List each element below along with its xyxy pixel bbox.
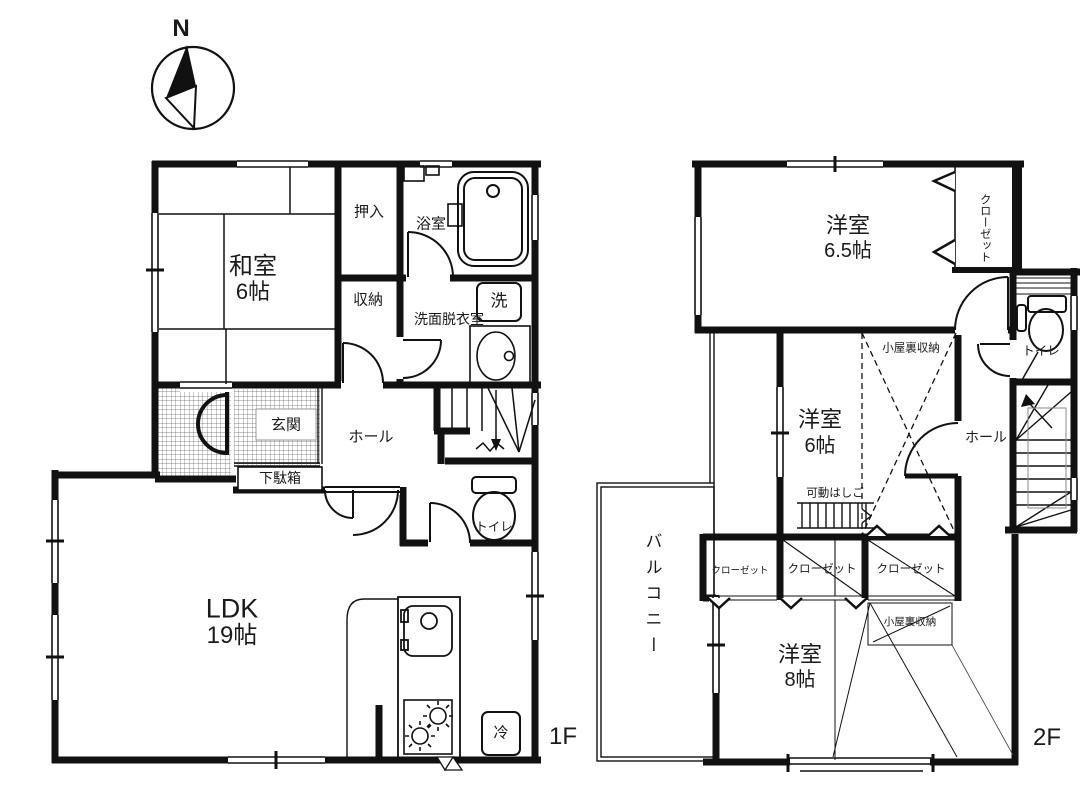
burner-1 [405,721,435,751]
room-label-oshiire: 押入 [354,205,384,220]
room-size-bedroom6: 6帖 [804,436,835,456]
compass-icon [152,45,234,129]
washer-label: 洗 [491,293,508,310]
ladder-label: 可動はしご [806,488,864,500]
room-label-toilet-2f: トイレ [1022,345,1060,358]
stove-icon [404,700,453,754]
room-label-toilet-1f: トイレ [475,521,513,534]
toilet-icon-2f [1017,296,1066,351]
room-label-washitsu: 和室 [229,255,277,279]
stairs-1f [452,388,535,452]
floor2-label: 2F [1033,726,1061,750]
room-size-ldk: 19帖 [207,624,258,648]
closet1-label: クローゼット [711,566,768,576]
floor1-plan [46,157,544,770]
attic-label-6: 小屋裏収納 [882,343,940,355]
closet-upper-2f [934,167,1017,270]
closet-upper-label: クローゼット [978,194,990,263]
windows-2f [691,156,1081,772]
toilet-2f [1016,273,1071,351]
room-label-genkan: 玄関 [271,418,301,433]
shoe-cabinet-label: 下駄箱 [259,471,301,485]
closet2-label: クローゼット [788,564,857,576]
room-label-bedroom6: 洋室 [798,409,842,431]
floor-plan-drawing [0,0,1087,802]
attic-storage-lines-6 [862,333,956,535]
fridge-label: 冷 [493,726,508,741]
vanity-sink-icon [470,326,530,384]
toilet-window-band [1016,273,1071,294]
room-label-ldk: LDK [206,596,259,623]
room-label-storage: 収納 [353,293,383,308]
room-label-bathroom: 浴室 [416,217,446,232]
kitchen-sink-icon [401,606,452,656]
compass-north-label: N [172,17,189,41]
balcony-label: バルコニー [644,532,661,662]
floor1-label: 1F [549,725,577,749]
stairs-2f [1016,385,1071,527]
room-label-bedroom65: 洋室 [826,215,870,237]
closet3-label: クローゼット [877,564,946,576]
room-label-hall-1f: ホール [348,430,393,445]
room-label-hall-2f: ホール [965,430,1007,444]
bathtub-icon [458,172,528,266]
room-label-bedroom8: 洋室 [778,644,822,666]
room-size-bedroom8: 8帖 [784,670,815,690]
floor-plan-image: N 和室 6帖 押入 浴室 収納 洗面脱衣室 洗 玄関 下駄箱 ホール トイレ … [0,0,1087,802]
attic-label-8: 小屋裏収納 [884,617,937,628]
room-size-washitsu: 6帖 [236,281,270,303]
burner-2 [423,701,453,731]
room-label-washroom: 洗面脱衣室 [414,312,484,326]
walls-2f [692,161,1080,765]
room-size-bedroom65: 6.5帖 [824,241,872,261]
